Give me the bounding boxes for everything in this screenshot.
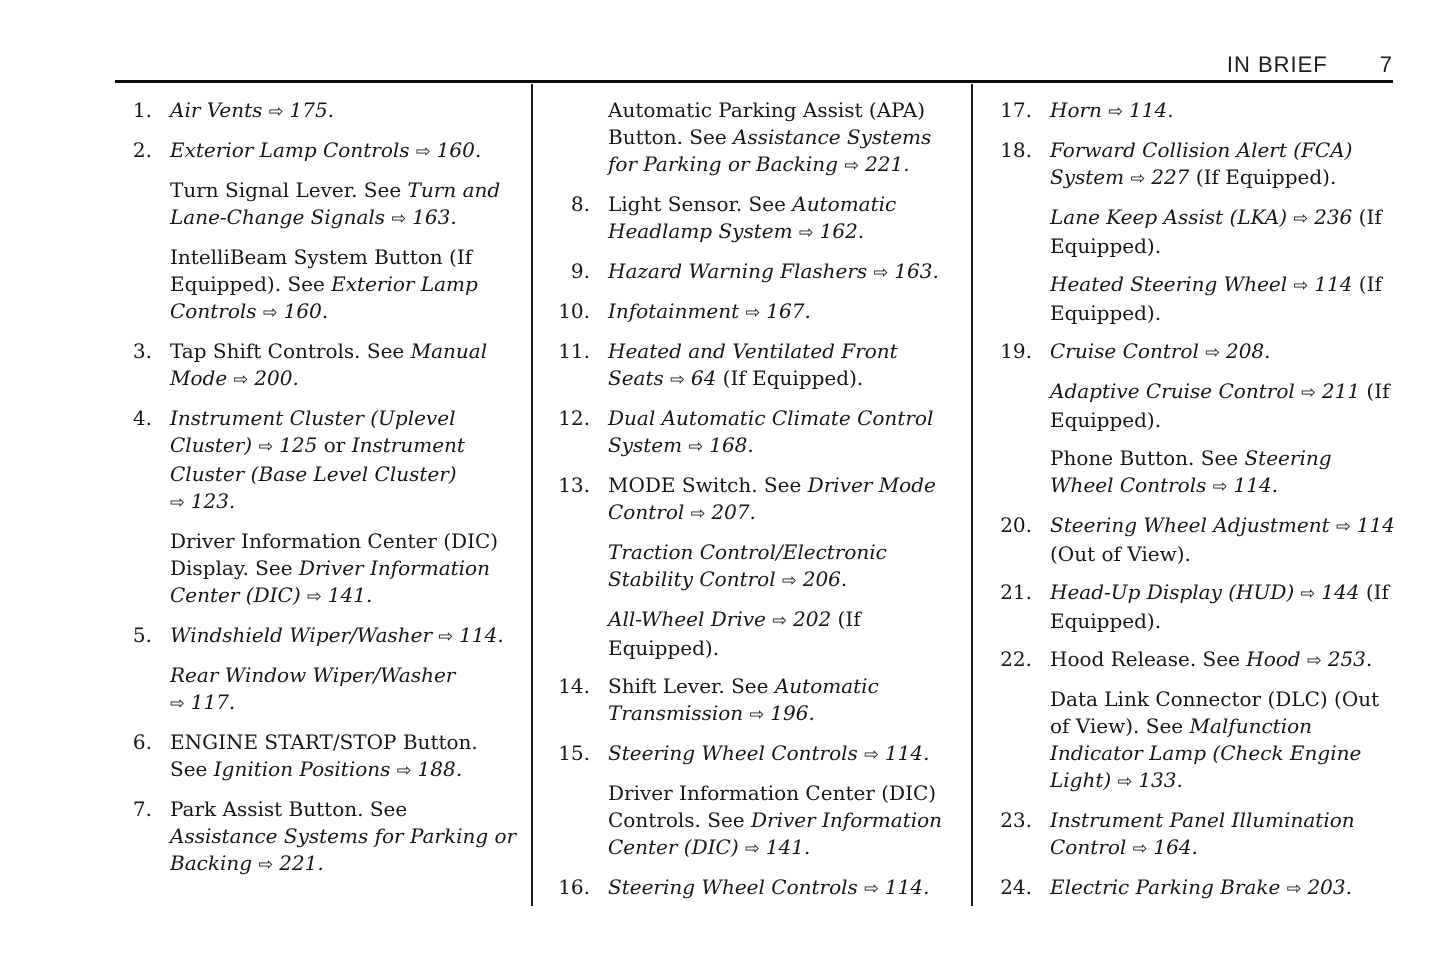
list-item-body: Heated and Ventilated Front Seats ⇨64 (I… <box>608 338 956 405</box>
page-reference-arrow-icon: ⇨ <box>1108 102 1123 122</box>
list-item-paragraph: Adaptive Cruise Control ⇨211 (If Equippe… <box>1050 378 1400 434</box>
page-reference-arrow-icon: ⇨ <box>1205 343 1220 363</box>
list-item-number: 7. <box>120 796 170 890</box>
page-reference-number: 141. <box>328 583 373 607</box>
list-item-body: Steering Wheel Controls ⇨114.Driver Info… <box>608 740 956 874</box>
list-item-paragraph: Traction Control/Electronic Stability Co… <box>608 539 956 595</box>
list-item-paragraph: Cruise Control ⇨208. <box>1050 338 1400 367</box>
page-reference: ⇨211 <box>1301 379 1360 403</box>
page-reference-number: 253. <box>1328 647 1373 671</box>
list-item: Automatic Parking Assist (APA) Button. S… <box>558 97 956 191</box>
page-reference: ⇨221. <box>844 152 909 176</box>
page-reference-arrow-icon: ⇨ <box>416 142 431 162</box>
list-item-paragraph: Light Sensor. See Automatic Headlamp Sys… <box>608 191 956 247</box>
text-run: MODE Switch. See <box>608 473 808 497</box>
list-item-number <box>558 97 608 191</box>
list-item-paragraph: Shift Lever. See Automatic Transmission … <box>608 673 956 729</box>
page-reference: ⇨64 <box>670 366 716 390</box>
page-reference: ⇨125 <box>258 433 317 457</box>
page-reference: ⇨202 <box>772 607 831 631</box>
list-item-number: 13. <box>558 472 608 673</box>
page-reference-arrow-icon: ⇨ <box>799 223 814 243</box>
list-item: 3.Tap Shift Controls. See Manual Mode ⇨2… <box>120 338 518 405</box>
text-run: Infotainment <box>608 299 746 323</box>
list-item-number: 14. <box>558 673 608 740</box>
list-item-body: Shift Lever. See Automatic Transmission … <box>608 673 956 740</box>
page-reference: ⇨144 <box>1301 580 1360 604</box>
page-reference-number: 160. <box>284 299 329 323</box>
list-item-body: Forward Collision Alert (FCA) System ⇨22… <box>1050 137 1400 338</box>
page-reference: ⇨114. <box>1213 473 1278 497</box>
text-run: Ignition Positions <box>214 757 397 781</box>
page-reference: ⇨163. <box>874 259 939 283</box>
page-reference-arrow-icon: ⇨ <box>1301 383 1316 403</box>
list-item-paragraph: Head-Up Display (HUD) ⇨144 (If Equipped)… <box>1050 579 1400 635</box>
list-item-paragraph: Windshield Wiper/Washer ⇨114. <box>170 622 518 651</box>
text-run: Park Assist Button. See <box>170 797 407 821</box>
list-item-body: Air Vents ⇨175. <box>170 97 518 137</box>
list-item-paragraph: Instrument Panel Illumination Control ⇨1… <box>1050 807 1400 863</box>
list-item-body: Windshield Wiper/Washer ⇨114.Rear Window… <box>170 622 518 729</box>
page-reference-number: 221. <box>279 851 324 875</box>
list-item-body: Dual Automatic Climate Control System ⇨1… <box>608 405 956 472</box>
list-item-number: 20. <box>1000 512 1050 579</box>
page-reference-arrow-icon: ⇨ <box>1336 517 1351 537</box>
list-item: 16.Steering Wheel Controls ⇨114. <box>558 874 956 914</box>
page-reference-arrow-icon: ⇨ <box>269 102 284 122</box>
header-rule <box>115 80 1393 83</box>
text-run: Dual Automatic Climate Control System <box>608 406 933 457</box>
page-reference-arrow-icon: ⇨ <box>782 571 797 591</box>
page-reference-number: 164. <box>1153 835 1198 859</box>
list-item: 14.Shift Lever. See Automatic Transmissi… <box>558 673 956 740</box>
list-item-paragraph: Lane Keep Assist (LKA) ⇨236 (If Equipped… <box>1050 204 1400 260</box>
list-item-body: Light Sensor. See Automatic Headlamp Sys… <box>608 191 956 258</box>
page-reference-arrow-icon: ⇨ <box>750 705 765 725</box>
list-item-number: 18. <box>1000 137 1050 338</box>
list-item: 23.Instrument Panel Illumination Control… <box>1000 807 1400 874</box>
page-header: IN BRIEF 7 <box>115 54 1393 76</box>
page-reference-arrow-icon: ⇨ <box>1293 209 1308 229</box>
list-item-number: 6. <box>120 729 170 796</box>
list-item: 2.Exterior Lamp Controls ⇨160.Turn Signa… <box>120 137 518 338</box>
list-item-paragraph: Heated and Ventilated Front Seats ⇨64 (I… <box>608 338 956 394</box>
text-run: Hood Release. See <box>1050 647 1246 671</box>
page-reference: ⇨164. <box>1133 835 1198 859</box>
list-item-number: 4. <box>120 405 170 622</box>
text-run: Heated Steering Wheel <box>1050 272 1294 296</box>
page-reference-arrow-icon: ⇨ <box>670 370 685 390</box>
page-reference-number: 163. <box>412 205 457 229</box>
list-item-paragraph: Rear Window Wiper/Washer ⇨117. <box>170 662 518 718</box>
text-run: (If Equipped). <box>1189 165 1336 189</box>
page-reference-number: 117. <box>191 690 236 714</box>
text-run: All-Wheel Drive <box>608 607 772 631</box>
text-run: Tap Shift Controls. See <box>170 339 411 363</box>
list-item: 20.Steering Wheel Adjustment ⇨114 (Out o… <box>1000 512 1400 579</box>
page-reference-arrow-icon: ⇨ <box>397 761 412 781</box>
column-1: 1.Air Vents ⇨175.2.Exterior Lamp Control… <box>120 97 518 890</box>
page-header-title: IN BRIEF <box>1227 54 1328 76</box>
page-reference-number: 114. <box>1234 473 1279 497</box>
page-reference-number: 114 <box>1314 272 1352 296</box>
list-item-body: Exterior Lamp Controls ⇨160.Turn Signal … <box>170 137 518 338</box>
text-run: Turn Signal Lever. See <box>170 178 408 202</box>
text-run: Horn <box>1050 98 1108 122</box>
page-reference-arrow-icon: ⇨ <box>874 263 889 283</box>
list-item-number: 15. <box>558 740 608 874</box>
page-reference-number: 114 <box>1357 513 1395 537</box>
page-reference-arrow-icon: ⇨ <box>746 303 761 323</box>
column-3: 17.Horn ⇨114.18.Forward Collision Alert … <box>1000 97 1400 914</box>
page-reference: ⇨188. <box>397 757 462 781</box>
page-reference-number: 207. <box>711 500 756 524</box>
page-reference-arrow-icon: ⇨ <box>438 627 453 647</box>
page-reference-number: 114. <box>1129 98 1174 122</box>
page-reference-number: 221. <box>865 152 910 176</box>
list-item-number: 21. <box>1000 579 1050 646</box>
page-reference: ⇨114 <box>1336 513 1395 537</box>
list-item-paragraph: Steering Wheel Controls ⇨114. <box>608 874 956 903</box>
page-reference: ⇨162. <box>799 219 864 243</box>
list-item: 10.Infotainment ⇨167. <box>558 298 956 338</box>
page-reference-number: 141. <box>766 835 811 859</box>
text-run: Lane Keep Assist (LKA) <box>1050 205 1293 229</box>
column-separator-2 <box>971 84 973 906</box>
page-reference-arrow-icon: ⇨ <box>1133 839 1148 859</box>
page-reference-arrow-icon: ⇨ <box>745 839 760 859</box>
list-item-paragraph: Forward Collision Alert (FCA) System ⇨22… <box>1050 137 1400 193</box>
list-item-number: 23. <box>1000 807 1050 874</box>
page-reference-arrow-icon: ⇨ <box>1118 772 1133 792</box>
page-reference-number: 188. <box>418 757 463 781</box>
text-run: Hood <box>1246 647 1307 671</box>
list-item-paragraph: Infotainment ⇨167. <box>608 298 956 327</box>
page-reference: ⇨236 <box>1293 205 1352 229</box>
list-item-number: 22. <box>1000 646 1050 807</box>
list-item-paragraph: Tap Shift Controls. See Manual Mode ⇨200… <box>170 338 518 394</box>
page-reference-number: 236 <box>1314 205 1352 229</box>
page-reference: ⇨114. <box>438 623 503 647</box>
page-reference-number: 125 <box>279 433 317 457</box>
page-reference-arrow-icon: ⇨ <box>170 694 185 714</box>
list-item-body: Steering Wheel Adjustment ⇨114 (Out of V… <box>1050 512 1400 579</box>
page-reference-arrow-icon: ⇨ <box>1301 584 1316 604</box>
list-item-body: Electric Parking Brake ⇨203. <box>1050 874 1400 914</box>
page-reference-number: 114. <box>885 741 930 765</box>
text-run: Steering Wheel Controls <box>608 741 864 765</box>
page-reference-arrow-icon: ⇨ <box>1213 477 1228 497</box>
list-item: 4.Instrument Cluster (Uplevel Cluster) ⇨… <box>120 405 518 622</box>
page-reference-number: 160. <box>437 138 482 162</box>
list-item: 5.Windshield Wiper/Washer ⇨114.Rear Wind… <box>120 622 518 729</box>
text-run: Instrument Panel Illumination Control <box>1050 808 1355 859</box>
page-reference: ⇨167. <box>746 299 811 323</box>
list-item-paragraph: Dual Automatic Climate Control System ⇨1… <box>608 405 956 461</box>
list-item-paragraph: Park Assist Button. See Assistance Syste… <box>170 796 518 879</box>
manual-page: IN BRIEF 7 1.Air Vents ⇨175.2.Exterior L… <box>0 0 1445 965</box>
page-reference: ⇨227 <box>1130 165 1189 189</box>
page-reference: ⇨200. <box>234 366 299 390</box>
list-item: 21.Head-Up Display (HUD) ⇨144 (If Equipp… <box>1000 579 1400 646</box>
page-reference-number: 211 <box>1322 379 1360 403</box>
column-separator-1 <box>531 84 533 906</box>
list-item: 1.Air Vents ⇨175. <box>120 97 518 137</box>
text-run: Steering Wheel Controls <box>608 875 864 899</box>
list-item-body: Automatic Parking Assist (APA) Button. S… <box>608 97 956 191</box>
list-item-number: 10. <box>558 298 608 338</box>
list-item-paragraph: Steering Wheel Controls ⇨114. <box>608 740 956 769</box>
text-run: Electric Parking Brake <box>1050 875 1287 899</box>
text-run: Air Vents <box>170 98 269 122</box>
text-run: Assistance Systems for Parking or Backin… <box>170 824 516 875</box>
list-item-paragraph: Hood Release. See Hood ⇨253. <box>1050 646 1400 675</box>
list-item-number: 17. <box>1000 97 1050 137</box>
page-reference-number: 123. <box>191 489 236 513</box>
list-item: 17.Horn ⇨114. <box>1000 97 1400 137</box>
list-item-paragraph: Driver Information Center (DIC) Display.… <box>170 528 518 611</box>
text-run: Shift Lever. See <box>608 674 775 698</box>
list-item-paragraph: Heated Steering Wheel ⇨114 (If Equipped)… <box>1050 271 1400 327</box>
text-run: Steering Wheel Adjustment <box>1050 513 1336 537</box>
text-run: or <box>317 433 351 457</box>
list-item-paragraph: Exterior Lamp Controls ⇨160. <box>170 137 518 166</box>
text-run: Head-Up Display (HUD) <box>1050 580 1301 604</box>
page-number: 7 <box>1380 54 1393 76</box>
page-reference-number: 163. <box>894 259 939 283</box>
page-reference-arrow-icon: ⇨ <box>1130 169 1145 189</box>
list-item-body: Instrument Cluster (Uplevel Cluster) ⇨12… <box>170 405 518 622</box>
page-reference: ⇨114. <box>864 741 929 765</box>
page-reference-number: 200. <box>254 366 299 390</box>
page-reference-arrow-icon: ⇨ <box>688 437 703 457</box>
page-reference-arrow-icon: ⇨ <box>1294 276 1309 296</box>
page-reference-arrow-icon: ⇨ <box>391 209 406 229</box>
page-reference-number: 202 <box>793 607 831 631</box>
list-item-body: Hood Release. See Hood ⇨253.Data Link Co… <box>1050 646 1400 807</box>
page-reference-arrow-icon: ⇨ <box>844 156 859 176</box>
page-reference-arrow-icon: ⇨ <box>864 745 879 765</box>
list-item-number: 24. <box>1000 874 1050 914</box>
page-reference-arrow-icon: ⇨ <box>258 855 273 875</box>
page-reference: ⇨141. <box>745 835 810 859</box>
list-item-body: Cruise Control ⇨208.Adaptive Cruise Cont… <box>1050 338 1400 512</box>
page-reference-arrow-icon: ⇨ <box>1287 879 1302 899</box>
page-reference-number: 227 <box>1151 165 1189 189</box>
page-reference-arrow-icon: ⇨ <box>307 587 322 607</box>
list-item: 8.Light Sensor. See Automatic Headlamp S… <box>558 191 956 258</box>
page-reference: ⇨221. <box>258 851 323 875</box>
list-item-number: 1. <box>120 97 170 137</box>
list-item-number: 9. <box>558 258 608 298</box>
page-reference: ⇨175. <box>269 98 334 122</box>
page-reference: ⇨253. <box>1307 647 1372 671</box>
list-item-body: Instrument Panel Illumination Control ⇨1… <box>1050 807 1400 874</box>
page-reference: ⇨114. <box>864 875 929 899</box>
page-reference: ⇨160. <box>263 299 328 323</box>
page-reference: ⇨133. <box>1118 768 1183 792</box>
list-item-body: Steering Wheel Controls ⇨114. <box>608 874 956 914</box>
page-reference-number: 114. <box>885 875 930 899</box>
list-item-body: Head-Up Display (HUD) ⇨144 (If Equipped)… <box>1050 579 1400 646</box>
list-item-paragraph: Automatic Parking Assist (APA) Button. S… <box>608 97 956 180</box>
page-reference-arrow-icon: ⇨ <box>772 611 787 631</box>
text-run: Cruise Control <box>1050 339 1205 363</box>
list-item: 24.Electric Parking Brake ⇨203. <box>1000 874 1400 914</box>
list-item-number: 8. <box>558 191 608 258</box>
page-reference: ⇨203. <box>1287 875 1352 899</box>
page-reference: ⇨163. <box>391 205 456 229</box>
list-item-paragraph: Instrument Cluster (Uplevel Cluster) ⇨12… <box>170 405 518 517</box>
list-item-paragraph: Steering Wheel Adjustment ⇨114 (Out of V… <box>1050 512 1400 568</box>
page-reference: ⇨196. <box>750 701 815 725</box>
list-item-body: Hazard Warning Flashers ⇨163. <box>608 258 956 298</box>
list-item-paragraph: Air Vents ⇨175. <box>170 97 518 126</box>
text-run: Phone Button. See <box>1050 446 1244 470</box>
page-reference-arrow-icon: ⇨ <box>263 303 278 323</box>
list-item-number: 16. <box>558 874 608 914</box>
page-reference: ⇨160. <box>416 138 481 162</box>
page-reference: ⇨168. <box>688 433 753 457</box>
text-run: Light Sensor. See <box>608 192 792 216</box>
page-reference: ⇨206. <box>782 567 847 591</box>
list-item-paragraph: MODE Switch. See Driver Mode Control ⇨20… <box>608 472 956 528</box>
page-reference: ⇨207. <box>691 500 756 524</box>
list-item: 13.MODE Switch. See Driver Mode Control … <box>558 472 956 673</box>
page-reference-number: 167. <box>766 299 811 323</box>
list-item-paragraph: Hazard Warning Flashers ⇨163. <box>608 258 956 287</box>
page-reference-number: 206. <box>803 567 848 591</box>
page-reference-number: 64 <box>691 366 716 390</box>
text-run: Hazard Warning Flashers <box>608 259 874 283</box>
page-reference-number: 168. <box>709 433 754 457</box>
page-reference: ⇨114. <box>1108 98 1173 122</box>
list-item-paragraph: Phone Button. See Steering Wheel Control… <box>1050 445 1400 501</box>
list-item: 19.Cruise Control ⇨208.Adaptive Cruise C… <box>1000 338 1400 512</box>
list-item-paragraph: Horn ⇨114. <box>1050 97 1400 126</box>
list-item-body: Park Assist Button. See Assistance Syste… <box>170 796 518 890</box>
text-run: (Out of View). <box>1050 542 1191 566</box>
list-item-body: MODE Switch. See Driver Mode Control ⇨20… <box>608 472 956 673</box>
page-reference: ⇨123. <box>170 489 235 513</box>
list-item: 12.Dual Automatic Climate Control System… <box>558 405 956 472</box>
text-run: (If Equipped). <box>716 366 863 390</box>
list-item-number: 3. <box>120 338 170 405</box>
text-run: Windshield Wiper/Washer <box>170 623 438 647</box>
list-item-paragraph: Electric Parking Brake ⇨203. <box>1050 874 1400 903</box>
page-reference-number: 144 <box>1321 580 1359 604</box>
text-run: Rear Window Wiper/Washer <box>170 663 455 687</box>
page-reference-arrow-icon: ⇨ <box>258 437 273 457</box>
page-reference: ⇨114 <box>1294 272 1353 296</box>
list-item-body: Horn ⇨114. <box>1050 97 1400 137</box>
page-reference-number: 162. <box>820 219 865 243</box>
page-reference-number: 196. <box>770 701 815 725</box>
page-reference-number: 203. <box>1307 875 1352 899</box>
list-item: 7.Park Assist Button. See Assistance Sys… <box>120 796 518 890</box>
text-run: Adaptive Cruise Control <box>1050 379 1301 403</box>
page-reference-arrow-icon: ⇨ <box>234 370 249 390</box>
list-item-body: Infotainment ⇨167. <box>608 298 956 338</box>
page-reference-number: 133. <box>1138 768 1183 792</box>
list-item: 11.Heated and Ventilated Front Seats ⇨64… <box>558 338 956 405</box>
column-2: Automatic Parking Assist (APA) Button. S… <box>558 97 956 914</box>
page-reference-number: 208. <box>1226 339 1271 363</box>
list-item-body: ENGINE START/STOP Button. See Ignition P… <box>170 729 518 796</box>
list-item-number: 19. <box>1000 338 1050 512</box>
list-item: 6.ENGINE START/STOP Button. See Ignition… <box>120 729 518 796</box>
page-reference: ⇨141. <box>307 583 372 607</box>
list-item-paragraph: IntelliBeam System Button (If Equipped).… <box>170 244 518 327</box>
page-reference: ⇨117. <box>170 690 235 714</box>
list-item-paragraph: Turn Signal Lever. See Turn and Lane-Cha… <box>170 177 518 233</box>
list-item: 18.Forward Collision Alert (FCA) System … <box>1000 137 1400 338</box>
list-item-number: 2. <box>120 137 170 338</box>
list-item-paragraph: Driver Information Center (DIC) Controls… <box>608 780 956 863</box>
list-item-number: 12. <box>558 405 608 472</box>
list-item-number: 5. <box>120 622 170 729</box>
list-item-body: Tap Shift Controls. See Manual Mode ⇨200… <box>170 338 518 405</box>
list-item: 22.Hood Release. See Hood ⇨253.Data Link… <box>1000 646 1400 807</box>
page-reference-arrow-icon: ⇨ <box>691 504 706 524</box>
page-reference-arrow-icon: ⇨ <box>1307 651 1322 671</box>
page-reference-arrow-icon: ⇨ <box>864 879 879 899</box>
list-item-paragraph: All-Wheel Drive ⇨202 (If Equipped). <box>608 606 956 662</box>
page-reference: ⇨208. <box>1205 339 1270 363</box>
list-item-paragraph: Data Link Connector (DLC) (Out of View).… <box>1050 686 1400 796</box>
page-reference-number: 175. <box>290 98 335 122</box>
page-reference-number: 114. <box>459 623 504 647</box>
list-item-number: 11. <box>558 338 608 405</box>
list-item: 15.Steering Wheel Controls ⇨114.Driver I… <box>558 740 956 874</box>
page-reference-arrow-icon: ⇨ <box>170 493 185 513</box>
list-item-paragraph: ENGINE START/STOP Button. See Ignition P… <box>170 729 518 785</box>
text-run: Exterior Lamp Controls <box>170 138 416 162</box>
list-item: 9.Hazard Warning Flashers ⇨163. <box>558 258 956 298</box>
